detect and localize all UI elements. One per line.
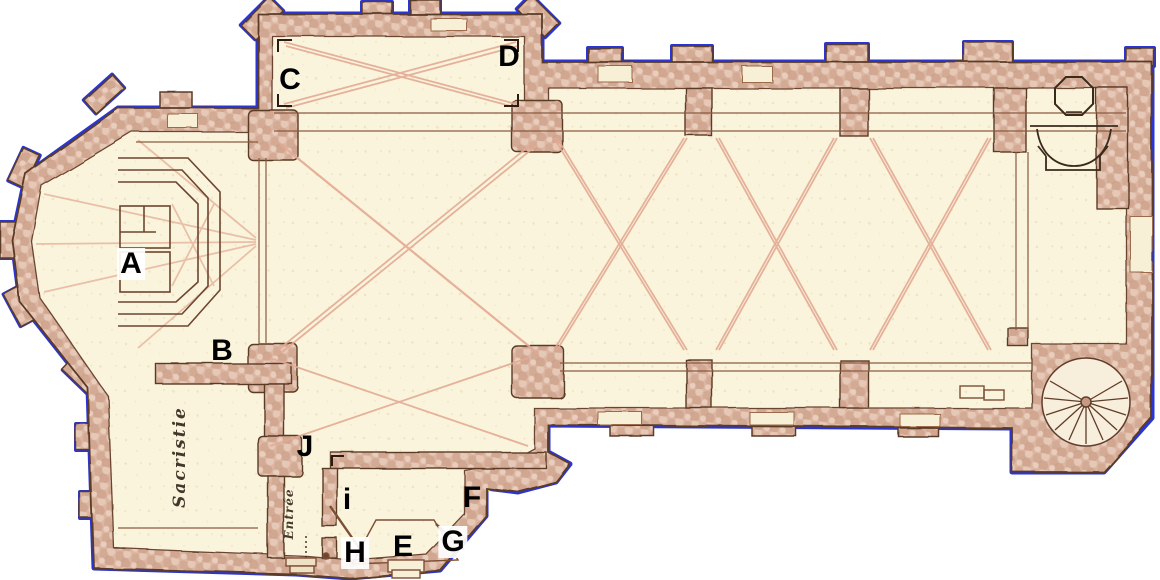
label-B: B — [208, 335, 236, 367]
label-J: J — [294, 431, 317, 463]
label-i: i — [340, 484, 354, 516]
church-floor-plan: A B C D E F G H i J Sacristie Entrée — [0, 0, 1160, 580]
label-C: C — [276, 64, 304, 96]
label-D: D — [495, 41, 523, 73]
label-E: E — [390, 531, 416, 563]
labels-overlay: A B C D E F G H i J Sacristie Entrée — [0, 0, 1160, 580]
label-A: A — [117, 248, 145, 280]
label-sacristie: Sacristie — [170, 406, 190, 508]
label-G: G — [438, 526, 467, 558]
label-H: H — [341, 537, 369, 569]
label-entree: Entrée — [282, 488, 296, 539]
label-F: F — [460, 482, 484, 514]
